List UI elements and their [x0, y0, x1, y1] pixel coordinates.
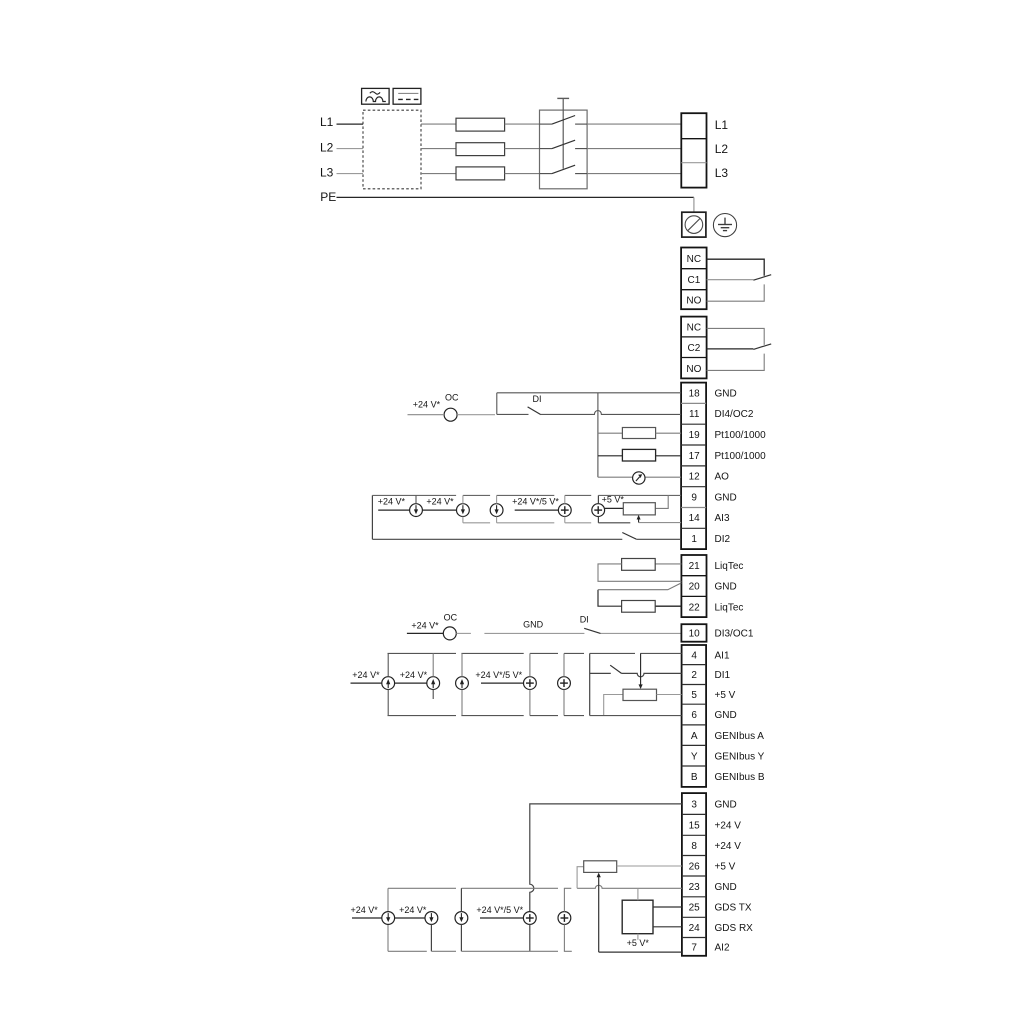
- svg-text:+24 V*: +24 V*: [411, 620, 439, 630]
- svg-text:GND: GND: [715, 492, 737, 503]
- svg-text:AO: AO: [715, 472, 730, 483]
- svg-text:DI: DI: [580, 614, 589, 624]
- svg-text:15: 15: [689, 821, 701, 832]
- svg-text:12: 12: [689, 472, 701, 483]
- svg-text:Pt100/1000: Pt100/1000: [715, 451, 767, 462]
- svg-text:GDS TX: GDS TX: [715, 903, 752, 914]
- svg-text:21: 21: [689, 561, 701, 572]
- svg-text:DI: DI: [533, 394, 542, 404]
- svg-text:GND: GND: [523, 619, 544, 629]
- svg-text:GND: GND: [715, 882, 737, 893]
- svg-text:6: 6: [691, 710, 697, 721]
- svg-text:20: 20: [689, 582, 701, 593]
- svg-text:NC: NC: [687, 323, 701, 334]
- svg-text:19: 19: [689, 430, 701, 441]
- svg-text:B: B: [691, 772, 698, 783]
- svg-text:14: 14: [689, 513, 701, 524]
- svg-text:GENIbus A: GENIbus A: [715, 731, 765, 742]
- svg-text:L1: L1: [715, 118, 729, 132]
- svg-text:+5 V: +5 V: [715, 861, 736, 872]
- svg-text:OC: OC: [445, 393, 459, 403]
- svg-text:+24 V*/5 V*: +24 V*/5 V*: [476, 905, 523, 915]
- svg-text:GDS RX: GDS RX: [715, 923, 754, 934]
- svg-text:22: 22: [689, 602, 701, 613]
- svg-text:10: 10: [689, 629, 701, 640]
- svg-text:+24 V*/5 V*: +24 V*/5 V*: [512, 497, 559, 507]
- svg-text:C1: C1: [688, 275, 701, 286]
- svg-text:+24 V*: +24 V*: [399, 905, 427, 915]
- svg-text:GND: GND: [715, 389, 737, 400]
- svg-text:1: 1: [691, 534, 697, 545]
- svg-text:GND: GND: [715, 582, 737, 593]
- svg-text:+5 V*: +5 V*: [602, 495, 625, 505]
- svg-text:C2: C2: [688, 343, 701, 354]
- svg-text:L1: L1: [320, 115, 334, 129]
- svg-text:7: 7: [691, 942, 697, 953]
- svg-text:+24 V*: +24 V*: [413, 400, 441, 410]
- svg-text:GND: GND: [715, 799, 737, 810]
- svg-text:25: 25: [689, 903, 701, 914]
- svg-text:11: 11: [689, 409, 700, 420]
- svg-text:24: 24: [689, 923, 701, 934]
- svg-text:Pt100/1000: Pt100/1000: [715, 430, 767, 441]
- svg-text:AI2: AI2: [715, 942, 730, 953]
- svg-text:4: 4: [691, 650, 697, 661]
- svg-text:+24 V: +24 V: [715, 821, 742, 832]
- svg-text:+24 V*: +24 V*: [352, 670, 380, 680]
- svg-text:3: 3: [691, 799, 697, 810]
- svg-text:+24 V*: +24 V*: [400, 670, 428, 680]
- svg-text:AI1: AI1: [715, 650, 730, 661]
- svg-text:5: 5: [691, 690, 697, 701]
- svg-text:GENIbus Y: GENIbus Y: [715, 751, 765, 762]
- svg-text:8: 8: [691, 841, 697, 852]
- svg-text:Y: Y: [691, 751, 698, 762]
- svg-text:PE: PE: [320, 190, 336, 204]
- svg-text:18: 18: [689, 389, 701, 400]
- svg-text:L2: L2: [320, 141, 334, 155]
- svg-text:DI1: DI1: [715, 670, 731, 681]
- svg-text:L3: L3: [320, 166, 334, 180]
- svg-text:L3: L3: [715, 166, 729, 180]
- svg-text:DI3/OC1: DI3/OC1: [715, 629, 754, 640]
- svg-text:LiqTec: LiqTec: [715, 602, 744, 613]
- svg-text:+24 V*: +24 V*: [351, 905, 379, 915]
- svg-text:DI2: DI2: [715, 534, 731, 545]
- svg-text:+24 V*: +24 V*: [378, 497, 406, 507]
- svg-text:GND: GND: [715, 710, 737, 721]
- svg-text:NO: NO: [686, 296, 701, 307]
- svg-text:GENIbus B: GENIbus B: [715, 772, 765, 783]
- svg-text:AI3: AI3: [715, 513, 730, 524]
- svg-text:26: 26: [689, 861, 701, 872]
- svg-text:+5 V: +5 V: [715, 690, 736, 701]
- svg-text:+24 V: +24 V: [715, 841, 742, 852]
- svg-text:OC: OC: [444, 612, 458, 622]
- svg-text:+5 V*: +5 V*: [627, 938, 650, 948]
- svg-text:+24 V*/5 V*: +24 V*/5 V*: [475, 670, 522, 680]
- svg-text:A: A: [691, 731, 698, 742]
- svg-text:17: 17: [689, 451, 701, 462]
- svg-text:+24 V*: +24 V*: [426, 497, 454, 507]
- svg-text:DI4/OC2: DI4/OC2: [715, 409, 754, 420]
- svg-text:23: 23: [689, 882, 701, 893]
- svg-text:2: 2: [691, 670, 697, 681]
- svg-text:L2: L2: [715, 142, 729, 156]
- svg-text:NC: NC: [687, 254, 701, 265]
- svg-text:LiqTec: LiqTec: [715, 561, 744, 572]
- svg-text:NO: NO: [686, 364, 701, 375]
- svg-text:9: 9: [691, 492, 697, 503]
